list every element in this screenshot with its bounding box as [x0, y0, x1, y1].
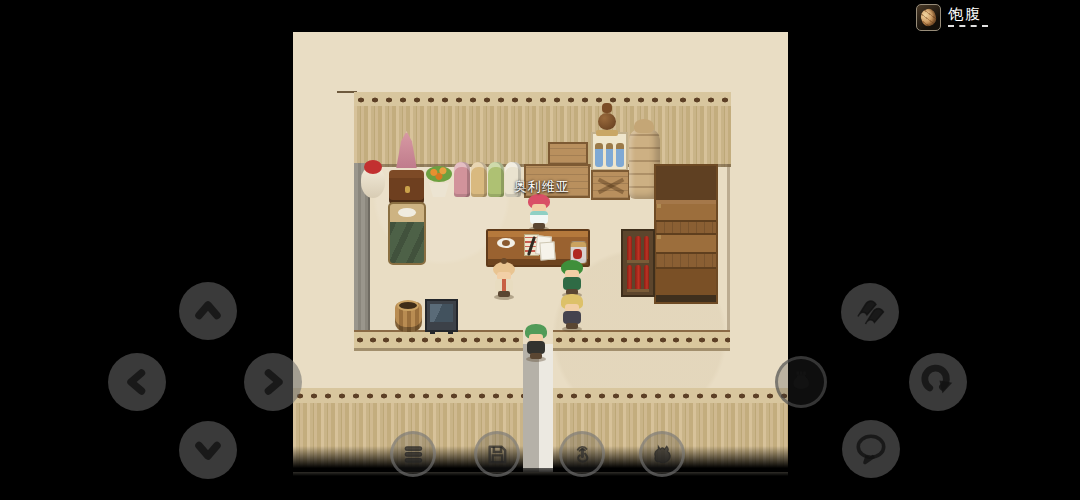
app-screen: 饱腹: [0, 0, 1080, 500]
shelf-band: [656, 220, 716, 235]
blue-bottle: [595, 143, 603, 167]
dpad-left-button[interactable]: [108, 353, 166, 411]
monster-icon: [650, 442, 675, 467]
redo-arrow-icon: [920, 364, 956, 400]
paper-sheet: [539, 241, 555, 260]
hamburger-icon: [401, 442, 426, 467]
outer-wall-knobs-right: [553, 388, 788, 404]
produce-row-2: [656, 235, 716, 251]
dash-streaks-icon: [852, 294, 888, 330]
floppy-disk-icon: [485, 442, 510, 467]
chevron-right-icon: [255, 364, 291, 400]
dpad-down-button[interactable]: [179, 421, 237, 479]
blonde-legs: [566, 323, 578, 329]
flowers: [426, 166, 452, 182]
character-child[interactable]: [491, 262, 517, 300]
character-green-hair[interactable]: [559, 260, 585, 298]
jug-neck: [602, 103, 612, 113]
pot: [429, 183, 449, 197]
game-viewport[interactable]: 奥利维亚: [293, 32, 788, 500]
coffee-cup: [497, 238, 515, 248]
wooden-tub: [395, 302, 422, 332]
brace-crate: [591, 170, 630, 200]
olivia-legs: [533, 223, 545, 229]
jug-base: [596, 130, 618, 136]
item-bag-button[interactable]: [775, 356, 827, 408]
red-bottle-shelf: [621, 229, 655, 297]
bottle-row: [627, 263, 649, 292]
inner-wall-row-left: [354, 330, 523, 351]
monster-button[interactable]: [639, 431, 685, 477]
goods-shelf: [654, 164, 718, 304]
inner-wall-row-right: [553, 330, 730, 351]
bottom-letterbox: [293, 468, 788, 500]
satiety-status[interactable]: 饱腹: [916, 4, 988, 31]
child-legs: [498, 291, 510, 297]
character-blonde[interactable]: [559, 294, 585, 332]
bottle-row: [627, 234, 649, 263]
wooden-chest: [389, 170, 424, 204]
door-path-shaded: [523, 344, 539, 472]
jug-body: [598, 113, 616, 130]
bread-baskets: [656, 269, 716, 296]
bread-glyph: [919, 7, 939, 28]
satiety-underline: [948, 25, 988, 27]
dpad-up-button[interactable]: [179, 282, 237, 340]
money-bag-icon: [787, 368, 816, 397]
chevron-left-icon: [119, 364, 155, 400]
dpad-right-button[interactable]: [244, 353, 302, 411]
red-doll: [361, 167, 385, 198]
flower-pot: [426, 166, 452, 197]
blue-bottle: [616, 143, 624, 167]
hooded-legs: [530, 353, 542, 359]
display-case: [425, 299, 458, 332]
produce-row-1: [656, 204, 716, 220]
dash-button[interactable]: [841, 283, 899, 341]
shelf-band: [656, 252, 716, 269]
fabric-bolt-green: [488, 162, 504, 197]
crate-top: [548, 142, 588, 165]
npc-name-label: 奥利维亚: [510, 178, 574, 196]
cabbage-crate: [657, 204, 661, 208]
speech-bubble-icon: [853, 431, 889, 467]
blue-bottle: [606, 143, 614, 167]
shelf-compartments: [656, 166, 716, 204]
outer-wall-knobs-left: [293, 388, 523, 404]
chat-button[interactable]: [842, 420, 900, 478]
jug-on-crate: [596, 103, 618, 136]
bed: [388, 202, 426, 265]
door-path-light: [539, 344, 553, 472]
satiety-text-wrap: 饱腹: [948, 4, 988, 27]
papers-and-quill: [524, 234, 554, 260]
satiety-label: 饱腹: [948, 4, 982, 23]
chevron-up-icon: [190, 293, 226, 329]
mushroom-crate: [657, 235, 661, 239]
redo-button[interactable]: [909, 353, 967, 411]
pointing-hand-icon: [570, 442, 595, 467]
chevron-down-icon: [190, 432, 226, 468]
character-hooded-visitor[interactable]: [523, 324, 549, 362]
fabric-bolt-pink: [454, 162, 470, 197]
basket-table-edge: [656, 295, 716, 302]
menu-button[interactable]: [390, 431, 436, 477]
back-wall-knobs: [354, 92, 731, 107]
save-button[interactable]: [474, 431, 520, 477]
fabric-bolt-tan: [471, 162, 487, 197]
blue-bottle-crate: [591, 132, 628, 171]
touch-button[interactable]: [559, 431, 605, 477]
right-wall-edge: [727, 164, 730, 330]
bread-icon: [916, 4, 941, 31]
character-olivia[interactable]: [526, 194, 552, 232]
